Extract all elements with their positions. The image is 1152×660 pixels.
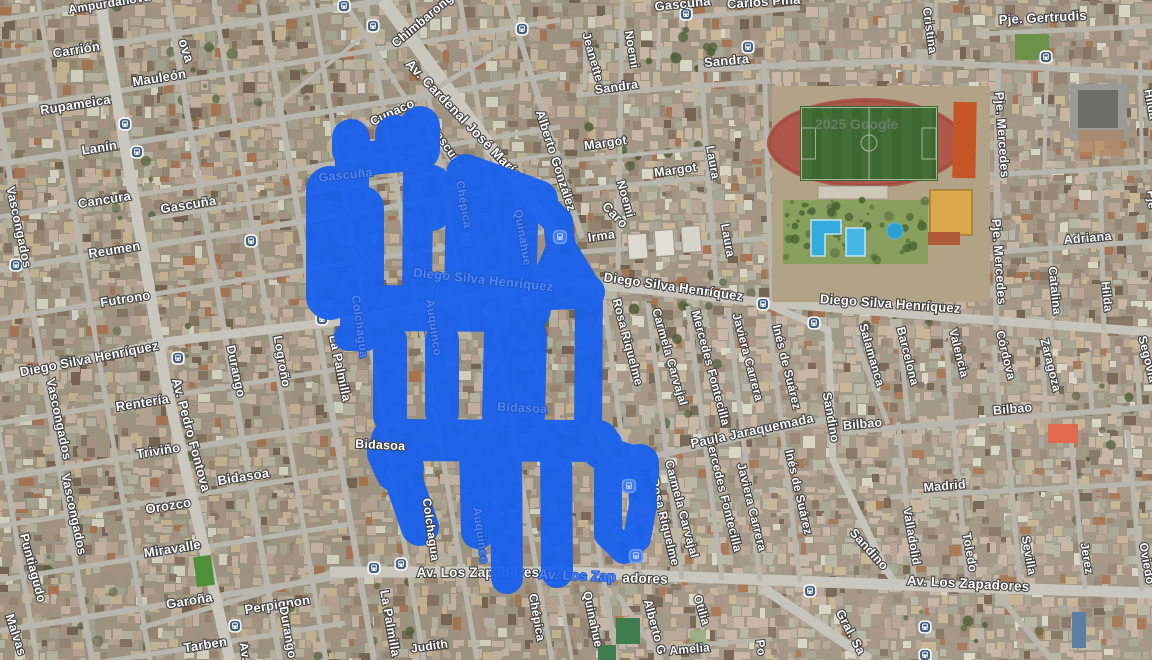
- svg-text:Bidasoa: Bidasoa: [355, 437, 407, 454]
- svg-text:Bidasoa: Bidasoa: [497, 400, 549, 417]
- svg-text:Pje: Pje: [1144, 190, 1152, 210]
- svg-text:adores: adores: [622, 570, 668, 587]
- svg-text:Av.: Av.: [236, 641, 253, 660]
- svg-text:Av. Los Zap: Av. Los Zap: [538, 567, 616, 585]
- svg-text:Po: Po: [753, 639, 769, 656]
- svg-text:2025 Google: 2025 Google: [815, 116, 898, 132]
